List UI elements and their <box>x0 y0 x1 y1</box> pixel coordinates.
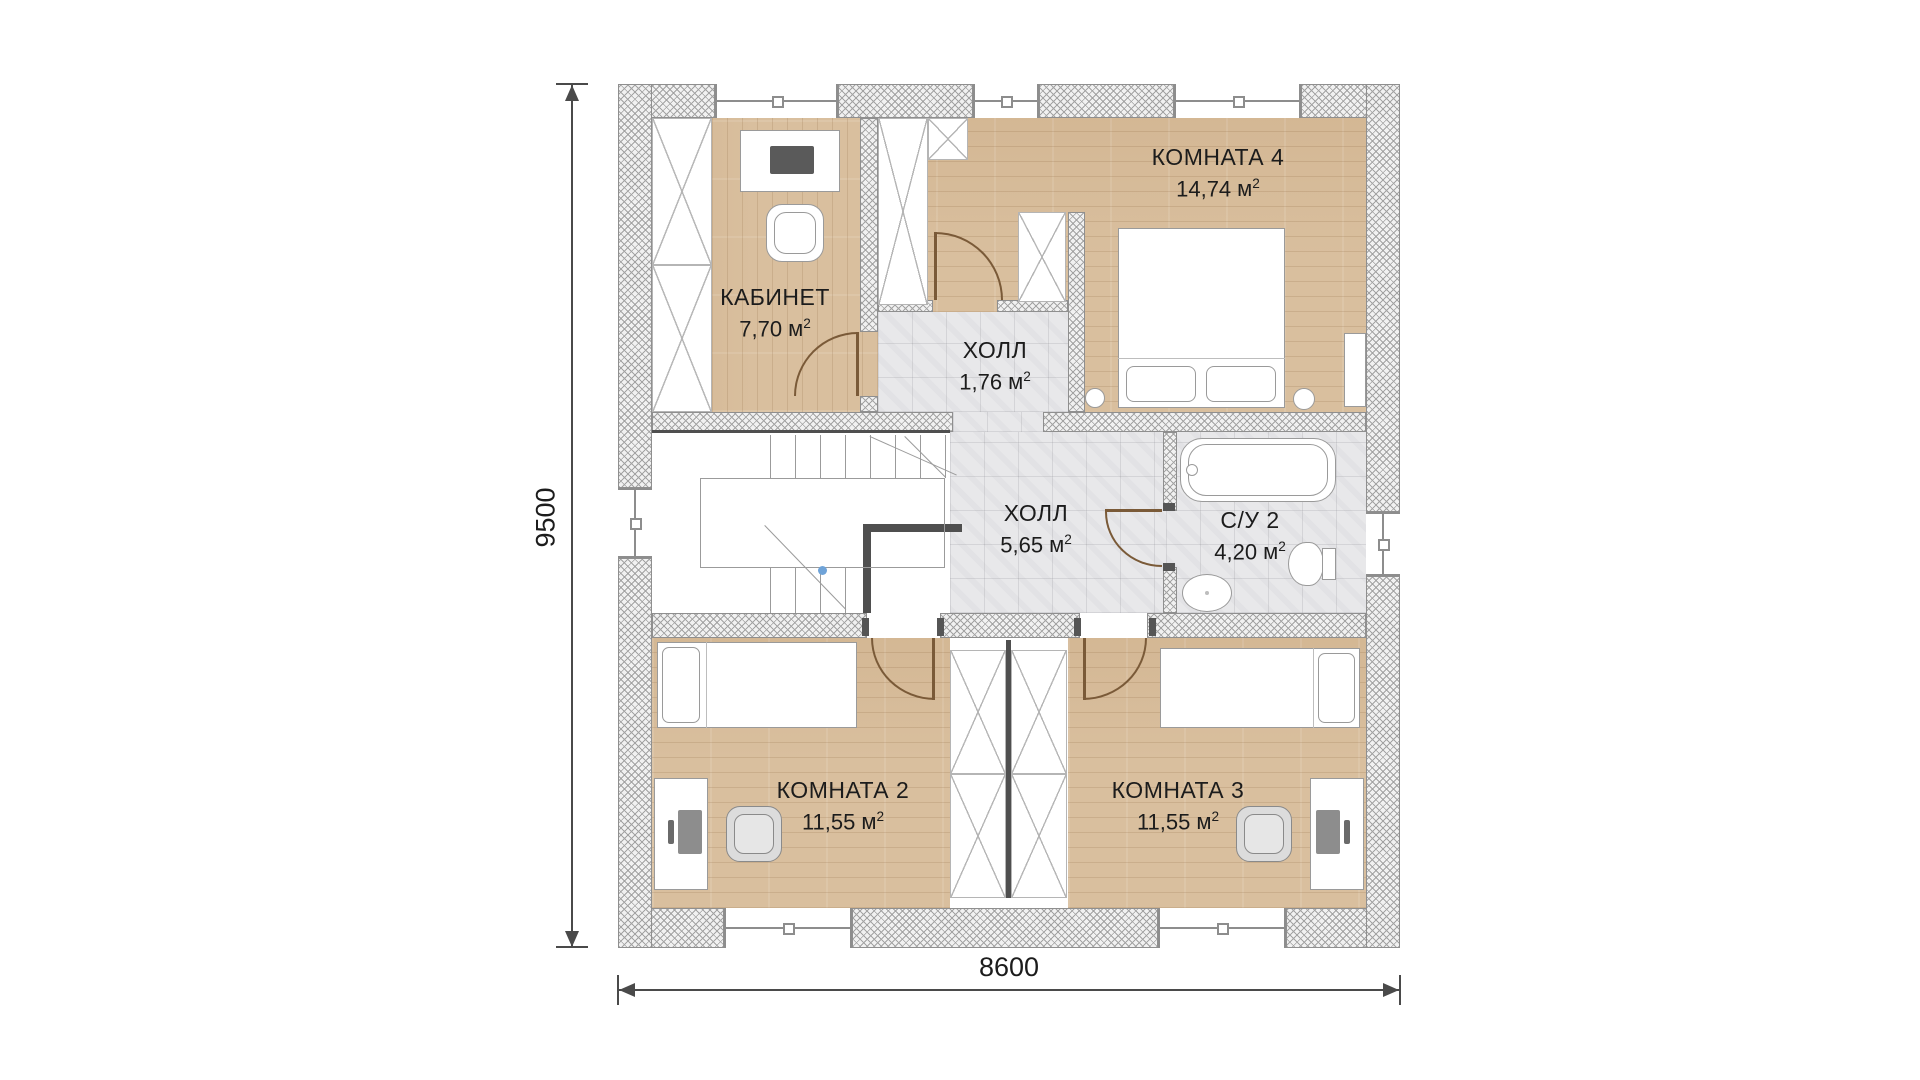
dimension-arrow-left-icon <box>619 983 635 997</box>
room-name-su2: С/У 2 <box>1220 507 1279 534</box>
wall-top-3 <box>1039 84 1174 118</box>
label-hall-small: ХОЛЛ 1,76м2 <box>885 337 1105 395</box>
window-top-room4 <box>1174 84 1301 118</box>
wardrobe-room3-lower <box>1011 774 1067 898</box>
wall-top-2 <box>838 84 973 118</box>
wardrobe-room4 <box>1018 212 1066 302</box>
pillow-room3 <box>1318 653 1355 723</box>
dimension-width-label: 8600 <box>949 952 1069 983</box>
label-hall-main: ХОЛЛ 5,65м2 <box>926 500 1146 558</box>
wall-stairs-top-line <box>652 430 950 433</box>
bathtub-inner <box>1188 444 1328 496</box>
wardrobe-room2-lower <box>950 774 1006 898</box>
window-bottom-room3 <box>1158 908 1286 948</box>
monitor-room2-icon <box>668 820 674 844</box>
stairs-start-marker <box>818 566 827 575</box>
monitor-room3-icon <box>1344 820 1350 844</box>
bed-room3-line <box>1313 648 1314 728</box>
dimension-line-vertical <box>571 84 573 948</box>
window-top-corridor <box>973 84 1039 118</box>
door-jamb-room2-right <box>937 618 944 636</box>
wall-bottom-2 <box>852 908 1158 948</box>
label-room3: КОМНАТА 3 11,55м2 <box>1068 777 1288 835</box>
room-name-room4: КОМНАТА 4 <box>1152 144 1285 171</box>
window-left-stairs <box>618 488 652 558</box>
computer-room3-icon <box>1316 810 1340 854</box>
window-top-kabinet <box>715 84 838 118</box>
stairs-railing <box>700 478 945 568</box>
wardrobe-room2-upper <box>950 650 1006 774</box>
label-kabinet: КАБИНЕТ 7,70м2 <box>665 284 885 342</box>
wardrobe-room3-upper <box>1011 650 1067 774</box>
dimension-tick-right <box>1399 975 1401 1005</box>
bed-room2-line <box>706 642 707 728</box>
floor-plan-canvas: КАБИНЕТ 7,70м2 ХОЛЛ 1,76м2 КОМНАТА 4 14,… <box>0 0 1920 1080</box>
door-jamb-room3-left <box>1074 618 1081 636</box>
window-right-su2 <box>1366 512 1400 576</box>
door-jamb-room3-right <box>1149 618 1156 636</box>
stool-room4-right <box>1293 388 1315 410</box>
wall-kabinet-right-lower <box>860 396 878 412</box>
dimension-height-label: 9500 <box>531 458 562 578</box>
room-name-hall-small: ХОЛЛ <box>963 337 1027 364</box>
room-area-kabinet: 7,70м2 <box>739 316 811 342</box>
room-area-room3: 11,55м2 <box>1137 809 1219 835</box>
window-bottom-room2 <box>724 908 852 948</box>
label-su2: С/У 2 4,20м2 <box>1140 507 1360 565</box>
pillow-room2 <box>662 647 700 723</box>
door-leaf-room3 <box>1083 638 1086 700</box>
room-area-hall-small: 1,76м2 <box>959 369 1031 395</box>
wall-right-1 <box>1366 84 1400 512</box>
wardrobe-kabinet-upper <box>652 118 712 265</box>
dimension-arrow-right-icon <box>1383 983 1399 997</box>
dimension-arrow-down-icon <box>565 931 579 947</box>
wall-midband-right <box>1043 412 1366 432</box>
label-room4: КОМНАТА 4 14,74м2 <box>1108 144 1328 202</box>
room-name-hall-main: ХОЛЛ <box>1004 500 1068 527</box>
chair-kabinet-back <box>774 212 816 254</box>
room-area-hall-main: 5,65м2 <box>1000 532 1072 558</box>
computer-kabinet-icon <box>770 146 814 174</box>
wall-left-2 <box>618 558 652 948</box>
door-leaf-room2 <box>932 638 935 700</box>
room-name-kabinet: КАБИНЕТ <box>720 284 830 311</box>
label-room2: КОМНАТА 2 11,55м2 <box>733 777 953 835</box>
wall-bottomband-1 <box>652 613 867 638</box>
sink-drain-dot <box>1205 591 1209 595</box>
wall-midband-left <box>652 412 953 432</box>
room-name-room3: КОМНАТА 3 <box>1112 777 1245 804</box>
computer-room2-icon <box>678 810 702 854</box>
pillow-room4-right <box>1206 366 1276 402</box>
bed-room4-blanket-line <box>1118 358 1285 359</box>
stairs-lower-flight <box>770 568 863 613</box>
room-name-room2: КОМНАТА 2 <box>777 777 910 804</box>
wall-bottomband-2 <box>940 613 1080 638</box>
wall-right-2 <box>1366 576 1400 948</box>
room-area-room2: 11,55м2 <box>802 809 884 835</box>
dimension-arrow-up-icon <box>565 85 579 101</box>
dresser-room4 <box>1344 333 1366 407</box>
bathtub-faucet-icon <box>1186 464 1198 476</box>
stairs-upper-flight <box>770 435 948 478</box>
wall-su2-left-lower <box>1163 567 1177 613</box>
wardrobe-corridor-tall <box>878 118 928 305</box>
pillow-room4-left <box>1126 366 1196 402</box>
wall-bottomband-3 <box>1147 613 1366 638</box>
floor-passage <box>953 412 1043 432</box>
door-jamb-room2-left <box>862 618 869 636</box>
wall-su2-left-upper <box>1163 432 1177 511</box>
wall-left-1 <box>618 84 652 488</box>
room-area-room4: 14,74м2 <box>1176 176 1260 202</box>
room-area-su2: 4,20м2 <box>1214 539 1286 565</box>
dimension-line-horizontal <box>618 989 1400 991</box>
door-leaf-corridor <box>934 232 937 300</box>
wardrobe-corridor-small <box>928 118 968 160</box>
